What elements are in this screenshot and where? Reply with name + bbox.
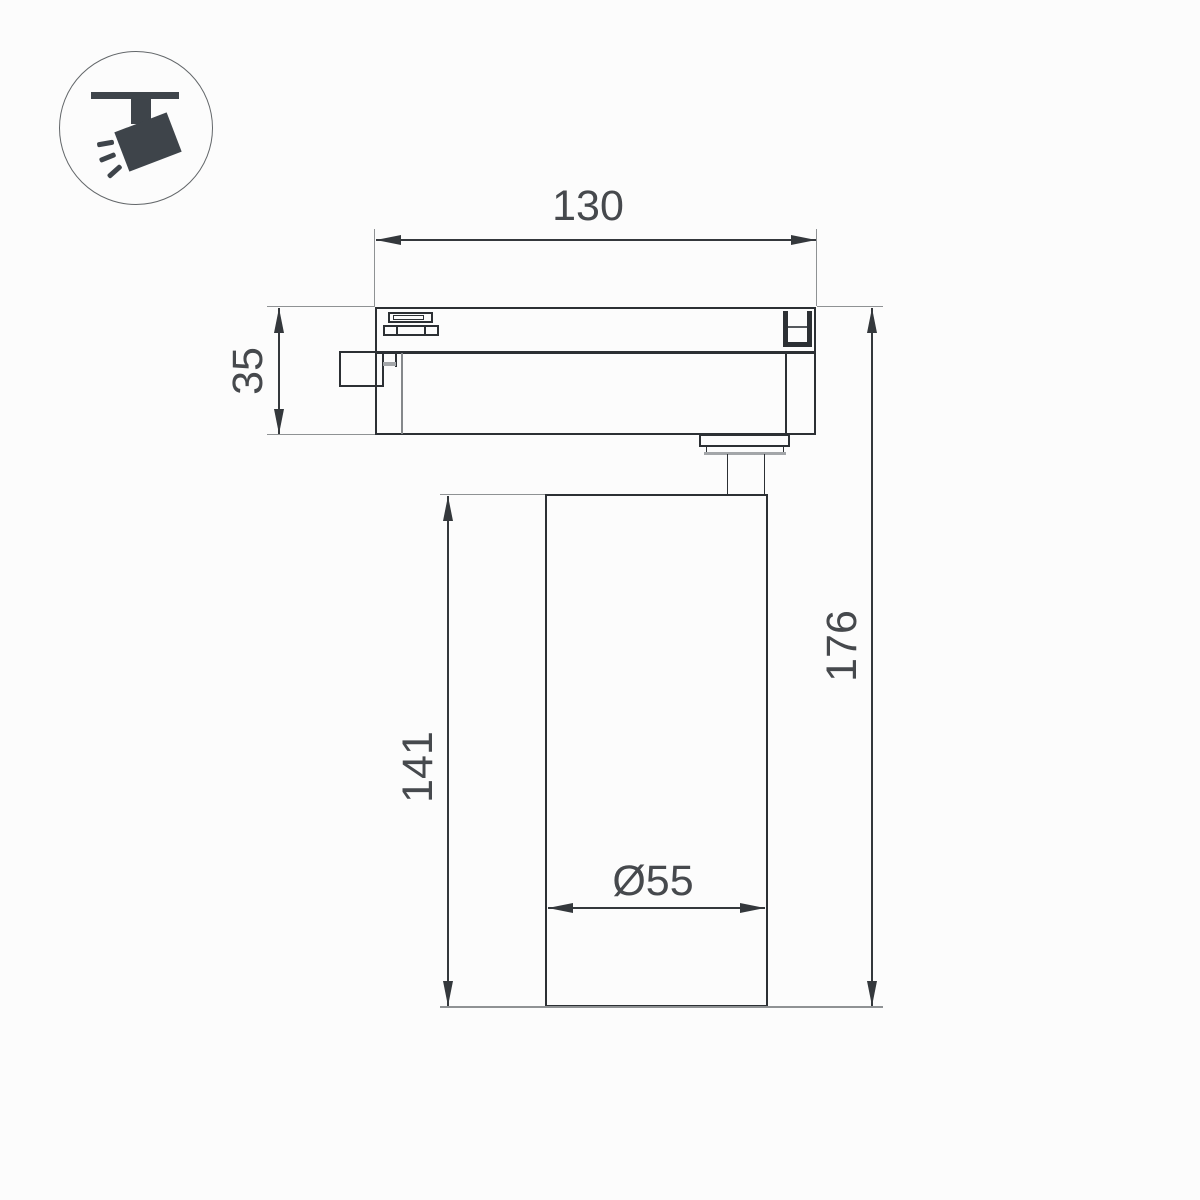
release-lever xyxy=(339,351,384,387)
adapter-internal-line-right xyxy=(785,353,787,434)
arrowhead-141-top xyxy=(443,496,453,521)
adapter-clip-lower xyxy=(383,325,439,336)
lever-notch-shadow xyxy=(383,362,396,366)
mount-neck xyxy=(727,454,765,496)
arrowhead-141-bottom xyxy=(443,981,453,1006)
adapter-internal-line-left xyxy=(401,353,403,434)
arrowhead-55-right xyxy=(740,903,765,913)
dim-label-diameter: Ø55 xyxy=(583,859,723,903)
dim-label-total-height: 176 xyxy=(820,596,864,696)
dim-label-adapter-height: 35 xyxy=(226,321,270,421)
dimension-line-176 xyxy=(871,308,873,1006)
arrowhead-176-top xyxy=(867,308,877,333)
dim-label-body-height: 141 xyxy=(396,717,440,817)
dimension-drawing-sheet: 130 35 141 176 Ø55 xyxy=(0,0,1200,1200)
arrowhead-55-left xyxy=(548,903,573,913)
extension-line-bottom xyxy=(440,1006,883,1008)
dimension-line-55 xyxy=(548,907,765,909)
extension-line-35-top xyxy=(267,306,375,307)
adapter-contact-mid-line xyxy=(788,326,807,328)
adapter-divider-line xyxy=(375,351,816,354)
dimension-line-141 xyxy=(447,496,449,1006)
arrowhead-35-top xyxy=(274,308,284,333)
adapter-clip-lower-notch xyxy=(396,326,398,335)
arrowhead-176-bottom xyxy=(867,981,877,1006)
arrowhead-130-right xyxy=(791,235,816,245)
extension-line-35-bottom xyxy=(267,434,375,435)
arrowhead-35-bottom xyxy=(274,409,284,434)
lamp-body-cylinder xyxy=(545,494,768,1007)
extension-line-130-left xyxy=(374,229,375,306)
extension-line-176-top xyxy=(817,306,883,307)
extension-line-141-top xyxy=(440,494,545,495)
adapter-contact-bottom-bar xyxy=(783,342,812,347)
adapter-clip-lower-notch xyxy=(424,326,426,335)
extension-line-130-right xyxy=(816,229,817,306)
adapter-clip-upper-inner xyxy=(393,315,424,320)
dimension-line-130 xyxy=(376,239,816,241)
dim-label-width: 130 xyxy=(528,184,648,228)
track-adapter-outline xyxy=(375,307,816,435)
arrowhead-130-left xyxy=(376,235,401,245)
